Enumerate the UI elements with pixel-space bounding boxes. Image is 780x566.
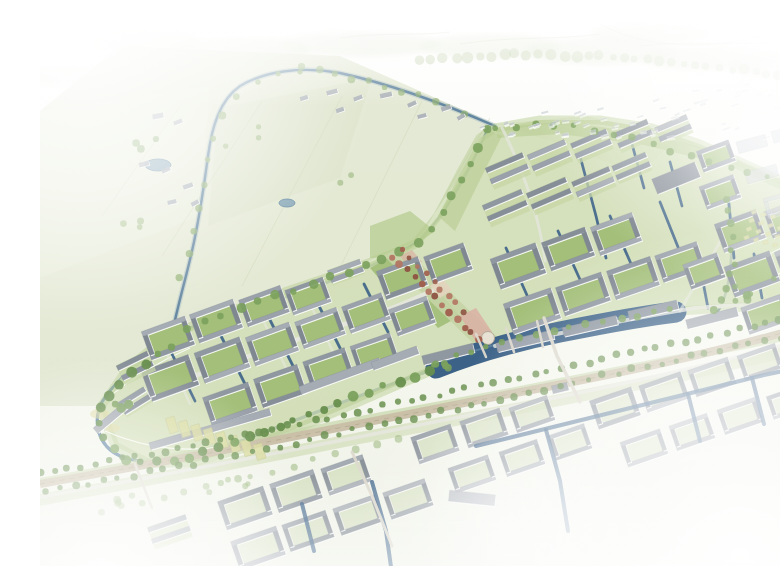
masterplan-rendering [40,16,780,566]
haze-overlay [40,16,780,566]
aerial-masterplan-canvas [40,16,780,566]
white-haze-vignette [40,16,780,566]
